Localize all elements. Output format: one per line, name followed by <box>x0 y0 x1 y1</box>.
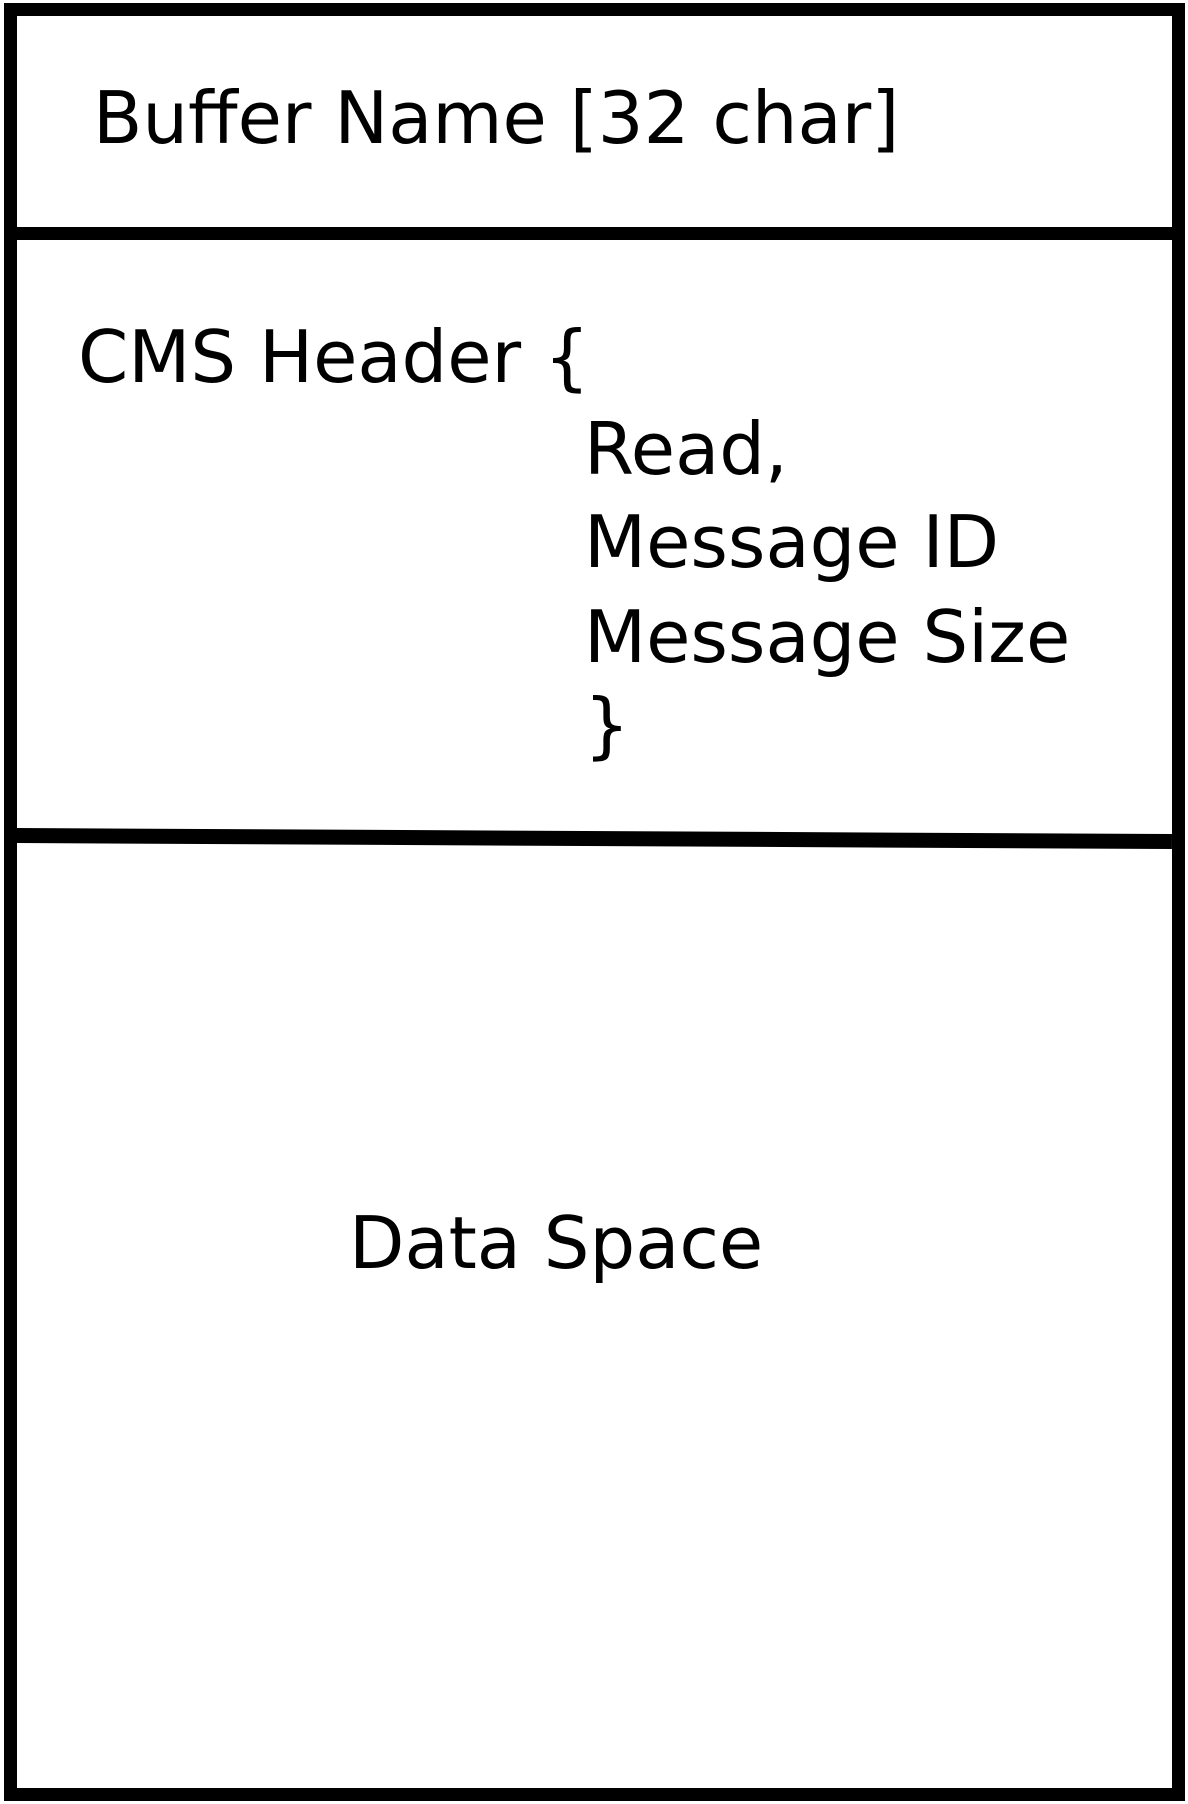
data-space-label: Data Space <box>349 1207 763 1279</box>
buffer-outline <box>4 3 1185 1801</box>
cms-field-read: Read, <box>584 413 788 485</box>
cms-field-message-id: Message ID <box>584 506 999 578</box>
cms-field-message-size: Message Size <box>584 601 1070 673</box>
cms-header-label: CMS Header { <box>78 321 590 393</box>
divider-buffer-name-cms-header <box>17 227 1172 240</box>
cms-closing-brace: } <box>584 689 630 761</box>
buffer-name-label: Buffer Name [32 char] <box>93 82 899 154</box>
buffer-layout-diagram: { "diagram": { "buffer_name": "Buffer Na… <box>0 0 1188 1804</box>
